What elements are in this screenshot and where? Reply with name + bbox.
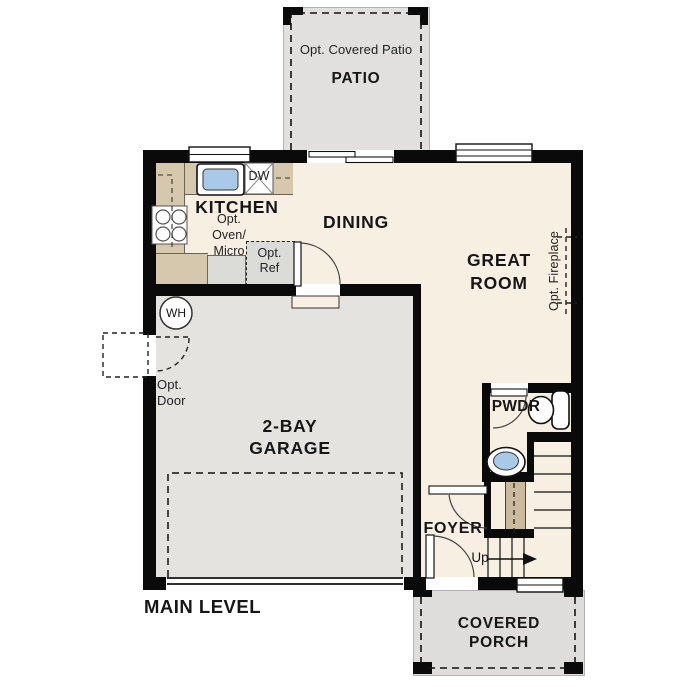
porch-post-top-right bbox=[564, 583, 583, 597]
opt-oven-line1: Opt. bbox=[189, 211, 269, 227]
level-title: MAIN LEVEL bbox=[144, 596, 284, 618]
wall-pwdr-north bbox=[482, 383, 571, 393]
porch-label: COVERED PORCH bbox=[449, 614, 549, 652]
oven-micro-cabinet bbox=[207, 255, 246, 285]
opt-door-line2: Door bbox=[157, 393, 207, 409]
dining-label: DINING bbox=[306, 212, 406, 233]
porch-post-bottom-left bbox=[413, 662, 432, 674]
porch-line1: COVERED bbox=[449, 614, 549, 633]
opt-ref-line2: Ref bbox=[246, 261, 293, 276]
garage-line2: GARAGE bbox=[240, 437, 340, 459]
wall-top bbox=[143, 150, 583, 163]
porch-post-bottom-right bbox=[564, 662, 583, 674]
wall-garage-east bbox=[413, 284, 421, 590]
wall-bottom bbox=[143, 577, 583, 590]
patio-opt-label: Opt. Covered Patio bbox=[296, 42, 416, 57]
garage-line1: 2-BAY bbox=[240, 415, 340, 437]
opt-oven-line2: Oven/ bbox=[189, 227, 269, 243]
porch-line2: PORCH bbox=[449, 633, 549, 652]
opt-ref-line1: Opt. bbox=[246, 246, 293, 261]
water-heater-label: WH bbox=[158, 306, 194, 320]
patio-post-right-cap bbox=[408, 7, 428, 15]
wall-left bbox=[143, 150, 156, 590]
floor-plan: Opt. Covered Patio PATIO KITCHEN DW Opt.… bbox=[0, 0, 687, 687]
wall-garage-north bbox=[143, 284, 420, 296]
opt-ref-label: Opt. Ref bbox=[246, 246, 293, 276]
opt-door-label: Opt. Door bbox=[157, 377, 207, 409]
garage-label: 2-BAY GARAGE bbox=[240, 415, 340, 459]
opt-fireplace-label: Opt. Fireplace bbox=[547, 226, 561, 316]
great-room-label: GREAT ROOM bbox=[449, 249, 549, 295]
dishwasher-label: DW bbox=[245, 169, 273, 183]
patio-post-left-cap bbox=[283, 7, 303, 15]
wall-right bbox=[571, 150, 583, 590]
patio-label: PATIO bbox=[306, 70, 406, 88]
great-room-line2: ROOM bbox=[449, 272, 549, 295]
opt-door-line1: Opt. bbox=[157, 377, 207, 393]
pwdr-label: PWDR bbox=[486, 398, 546, 416]
foyer-label: FOYER bbox=[413, 520, 493, 538]
porch-post-top-left bbox=[413, 583, 432, 597]
up-label: Up bbox=[466, 550, 494, 565]
wall-stairs-top bbox=[527, 432, 575, 442]
great-room-line1: GREAT bbox=[449, 249, 549, 272]
